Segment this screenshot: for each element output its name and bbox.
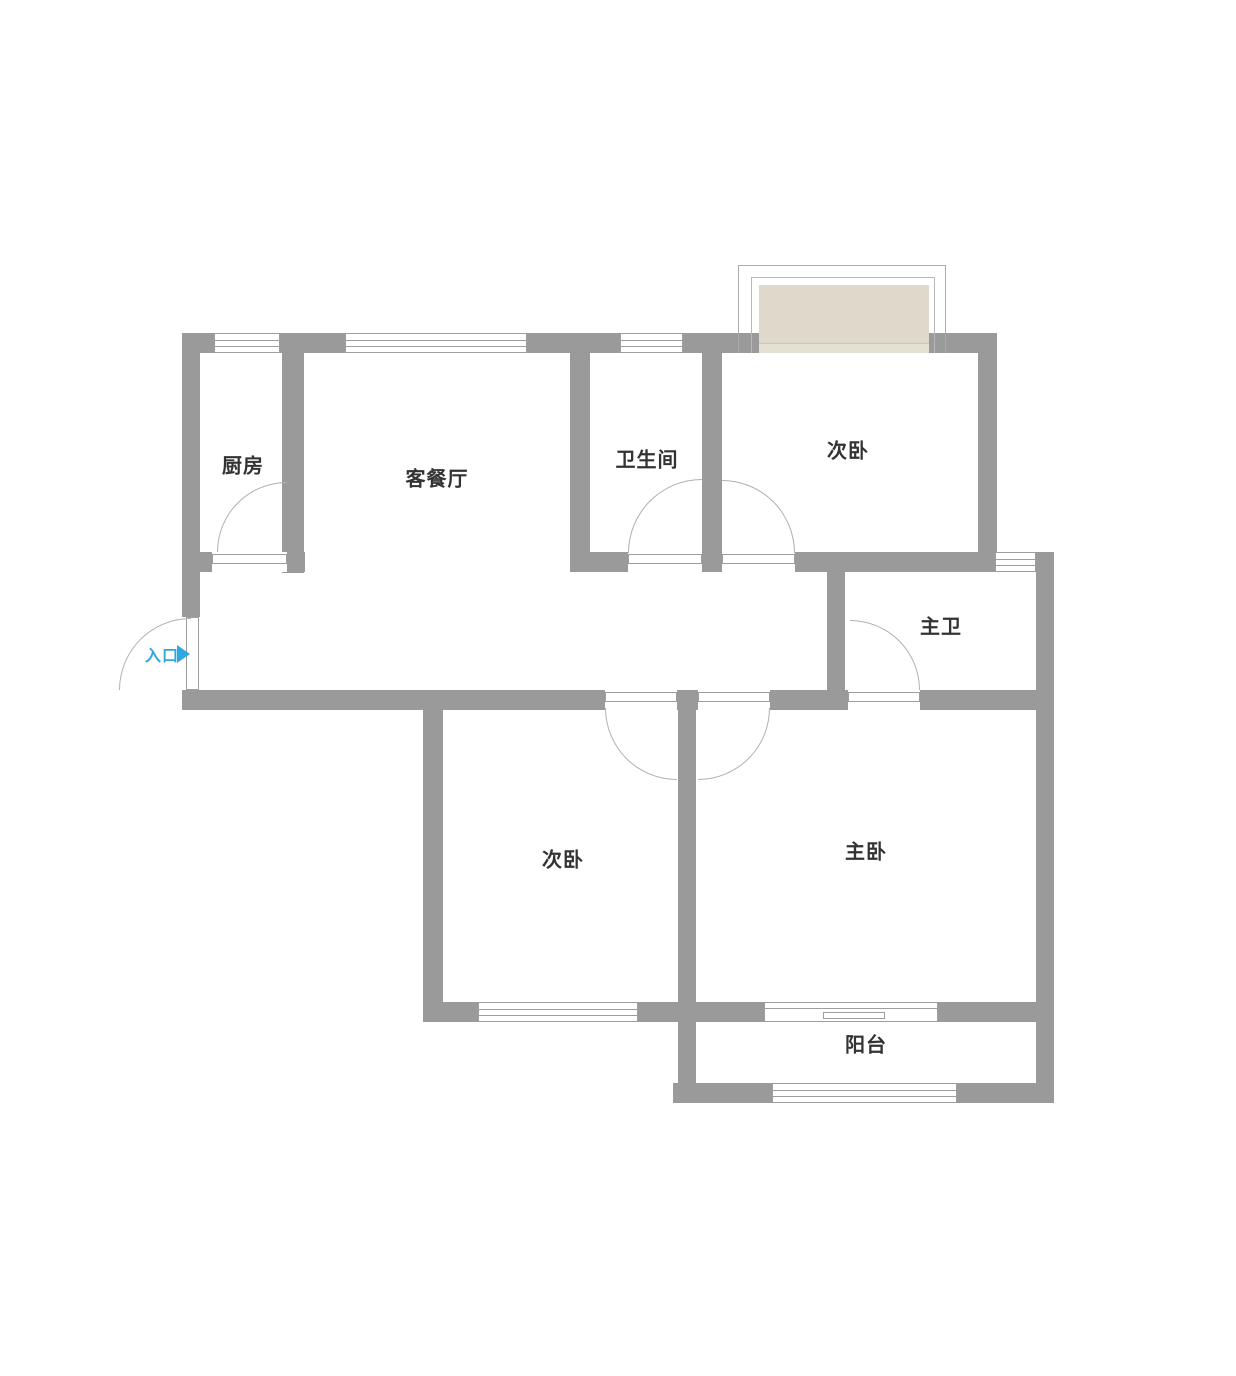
room-label-living-dining: 客餐厅 <box>406 463 469 492</box>
room-label-bathroom: 卫生间 <box>616 444 679 473</box>
wall-segment <box>423 692 443 1022</box>
window <box>620 333 683 353</box>
window <box>995 552 1036 572</box>
room-label-balcony: 阳台 <box>845 1029 887 1058</box>
door-swing-arc-master-bath <box>850 620 920 690</box>
wall-segment <box>702 333 722 572</box>
door-leaf-bathroom <box>628 554 702 564</box>
wall-segment <box>978 333 997 552</box>
sliding-door-window <box>764 1002 938 1022</box>
room-label-master-bedroom: 主卧 <box>845 836 887 865</box>
door-swing-arc-master-bedroom <box>698 708 770 780</box>
wall-segment <box>827 572 845 690</box>
door-leaf-master-bath <box>848 692 920 702</box>
wall-segment <box>678 692 696 1103</box>
room-label-kitchen: 厨房 <box>222 450 264 479</box>
door-swing-arc-bedroom-bottom <box>605 708 677 780</box>
door-swing-arc-kitchen <box>217 482 287 552</box>
door-swing-arc-bathroom <box>628 479 702 553</box>
wall-segment <box>570 333 590 572</box>
door-swing-arc-bedroom-top <box>722 480 795 553</box>
door-leaf-master-bedroom <box>698 692 770 702</box>
entrance-label: 入口 <box>145 642 179 666</box>
window <box>478 1002 638 1022</box>
bay-window-sill <box>759 285 929 343</box>
bay-window-sill-edge <box>759 343 929 353</box>
window <box>214 333 280 353</box>
window <box>772 1083 957 1103</box>
door-leaf-kitchen <box>212 554 287 564</box>
door-leaf-bedroom-bottom <box>605 692 677 702</box>
room-label-bedroom-bottom: 次卧 <box>542 844 584 873</box>
entrance-arrow-icon <box>177 645 190 663</box>
window <box>345 333 527 353</box>
floor-plan-canvas: 厨房 客餐厅 卫生间 次卧 主卫 次卧 主卧 阳台 入口 <box>0 0 1236 1376</box>
room-label-bedroom-top: 次卧 <box>827 435 869 464</box>
door-leaf-bedroom-top <box>722 554 795 564</box>
wall-segment <box>182 333 200 617</box>
room-label-master-bathroom: 主卫 <box>920 611 962 640</box>
